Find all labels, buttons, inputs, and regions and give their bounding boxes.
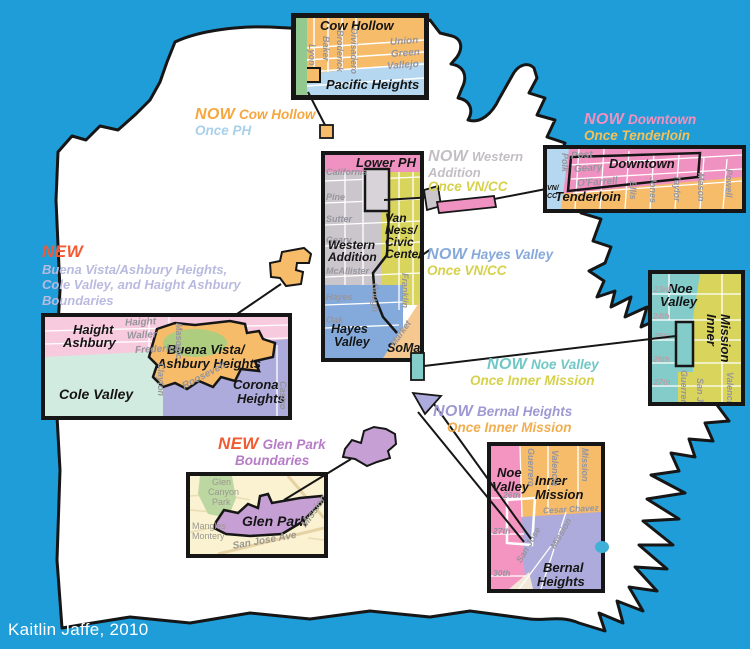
callout-downtown: NOWDowntown Once Tenderloin (584, 111, 696, 143)
area-label-noe-valley: Valley (660, 295, 697, 308)
street-mission-b: Mission (580, 448, 589, 482)
street-franklin: Franklin (400, 273, 409, 308)
park-label-park: Park (212, 498, 231, 507)
street-california: California (326, 168, 368, 177)
callout-bv-line1: Buena Vista/Ashbury Heights, (42, 262, 241, 278)
area-label-valley: Valley (334, 336, 370, 349)
street-guerrero-b: Guerrero (526, 448, 535, 487)
cow-hollow-changed-block (306, 68, 320, 82)
street-30th-b: 30th (493, 569, 510, 578)
street-valencia-noe: Valencia (725, 372, 734, 406)
callout-hv-once: Once VN/CC (427, 264, 553, 279)
area-label-noe-b: Noe (497, 466, 522, 479)
street-26th-b: 26th (503, 491, 520, 500)
street-mason: Mason (696, 173, 705, 202)
street-union: Union (390, 36, 419, 48)
area-label-center: Center (385, 248, 423, 260)
callout-bh-name: Bernal Heights (477, 404, 572, 419)
inset-box-haight: Haight Ashbury Cole Valley Buena Vista/ … (41, 313, 292, 420)
inset-box-cow-hollow: Cow Hollow Pacific Heights Lyon Baker Br… (291, 13, 429, 100)
street-geary-dt: Geary (574, 163, 603, 175)
street-sutter: Sutter (326, 215, 352, 224)
street-broderick: Broderick (335, 30, 344, 72)
street-27th-b: 27th (493, 527, 510, 536)
street-gough: Gough (370, 283, 379, 312)
street-post: Post (571, 150, 593, 161)
street-lyon: Lyon (307, 44, 316, 66)
western-addition-changed-block (365, 169, 389, 211)
park-label-canyon: Canyon (208, 488, 239, 497)
area-label-mission: Mission (719, 314, 732, 362)
street-divisadero: Divisadero (349, 28, 358, 74)
callout-bernal: NOWBernal Heights Once Inner Mission (433, 403, 572, 435)
callout-bv-line2: Cole Valley, and Haight Ashbury (42, 277, 241, 293)
park-label-glen: Glen (212, 478, 231, 487)
street-baker: Baker (321, 36, 330, 61)
street-waller: Waller (127, 330, 157, 342)
callout-bv-new-word: NEW (42, 243, 241, 262)
presidio-strip (296, 18, 307, 95)
callout-wa-now-word: NOW (428, 148, 468, 165)
callout-dt-now-word: NOW (584, 111, 624, 128)
inset-box-downtown: Downtown Tenderloin VN/ CC Post Geary O'… (543, 145, 746, 213)
area-label-corona: Corona (233, 378, 279, 391)
callout-buena-vista: NEW Buena Vista/Ashbury Heights, Cole Va… (42, 243, 241, 308)
callout-cow-hollow: NOWCow Hollow Once PH (195, 106, 316, 138)
street-23rd: 23rd (654, 286, 671, 294)
inset-box-bernal: Noe Valley Inner Mission Bernal Heights … (487, 442, 605, 593)
street-hayes: Hayes (326, 293, 353, 302)
noe-valley-changed-block (676, 322, 693, 366)
sf-neighborhood-map-infographic: Cow Hollow Pacific Heights Lyon Baker Br… (0, 0, 750, 649)
inset-box-glen-park: Glen Canyon Park Glen Park Mangles Monte… (186, 472, 328, 558)
area-label-mission-b: Mission (535, 488, 583, 501)
callout-nv-name: Noe Valley (531, 357, 599, 372)
street-masonic: Masonic (174, 323, 183, 359)
callout-wa-once: Once VN/CC (428, 180, 523, 195)
inset-box-noe-valley: Noe Valley Inner Mission 23rd 24th 25th … (648, 270, 745, 406)
callout-nv-now-word: NOW (487, 356, 527, 373)
street-jones: Jones (648, 177, 657, 203)
area-label-pacific-heights: Pacific Heights (326, 78, 419, 91)
credit-text: Kaitlin Jaffe, 2010 (8, 620, 149, 640)
street-haight: Haight (125, 317, 157, 329)
area-label-inner: Inner (705, 314, 718, 346)
street-26th: 26th (653, 356, 669, 364)
area-label-cole-valley: Cole Valley (59, 387, 133, 401)
callout-gp-line2: Boundaries (235, 454, 326, 469)
callout-bh-once: Once Inner Mission (447, 421, 572, 436)
street-clayton: Clayton (156, 363, 165, 396)
callout-hayes-valley: NOWHayes Valley Once VN/CC (427, 246, 553, 278)
area-label-vncc-1: VN/ (547, 185, 559, 192)
callout-nv-once: Once Inner Mission (470, 374, 599, 389)
callout-hv-now-word: NOW (427, 246, 467, 263)
street-pine: Pine (326, 193, 345, 202)
callout-dt-once: Once Tenderloin (584, 129, 696, 144)
callout-gp-name: Glen Park (263, 437, 326, 452)
callout-wa-name2: Addition (428, 166, 523, 180)
callout-bv-line3: Boundaries (42, 293, 241, 309)
street-24th: 24th (653, 313, 669, 321)
street-montery: Montery (192, 532, 225, 541)
street-mcallister: McAllister (326, 267, 369, 276)
street-25th: 25th (654, 333, 670, 341)
inset-box-western-addition: Lower PH California Pine Sutter Geary Mc… (321, 151, 424, 362)
street-castro: Castro (278, 381, 287, 410)
callout-cow-hollow-name: Cow Hollow (239, 107, 316, 122)
callout-hv-name: Hayes Valley (471, 247, 553, 262)
callout-bh-now-word: NOW (433, 403, 473, 420)
callout-wa-name: Western (472, 149, 523, 164)
street-san-jose-noe: San Jose (695, 378, 704, 406)
street-valencia-b: Valencia (550, 450, 559, 486)
street-ellis: Ellis (628, 181, 637, 200)
area-label-ashbury: Ashbury (63, 336, 116, 349)
callout-cow-hollow-now-word: NOW (195, 106, 235, 123)
area-label-glen-park: Glen Park (242, 514, 307, 528)
callout-gp-new-word: NEW (218, 434, 259, 453)
street-guerrero-noe: Guerrero (679, 370, 688, 406)
area-label-downtown: Downtown (609, 157, 675, 170)
callout-western-addition: NOWWestern Addition Once VN/CC (428, 148, 523, 195)
area-label-heights: Heights (537, 575, 585, 588)
callout-glen-park: NEWGlen Park Boundaries (218, 435, 326, 469)
street-mangles: Mangles (192, 522, 226, 531)
area-label-tenderloin: Tenderloin (555, 190, 621, 203)
street-polk: Polk (560, 153, 569, 172)
callout-cow-hollow-once: Once PH (195, 124, 316, 139)
area-label-addition: Addition (328, 251, 377, 263)
callout-noe-valley: NOWNoe Valley Once Inner Mission (470, 356, 599, 388)
area-label-hayes: Hayes (331, 323, 368, 336)
callout-dt-name: Downtown (628, 112, 696, 127)
street-taylor: Taylor (672, 175, 681, 202)
street-powell: Powell (724, 169, 733, 198)
area-label-vncc-2: CC (547, 193, 557, 200)
street-27th: 27th (654, 379, 670, 387)
area-label-bernal: Bernal (543, 561, 583, 574)
